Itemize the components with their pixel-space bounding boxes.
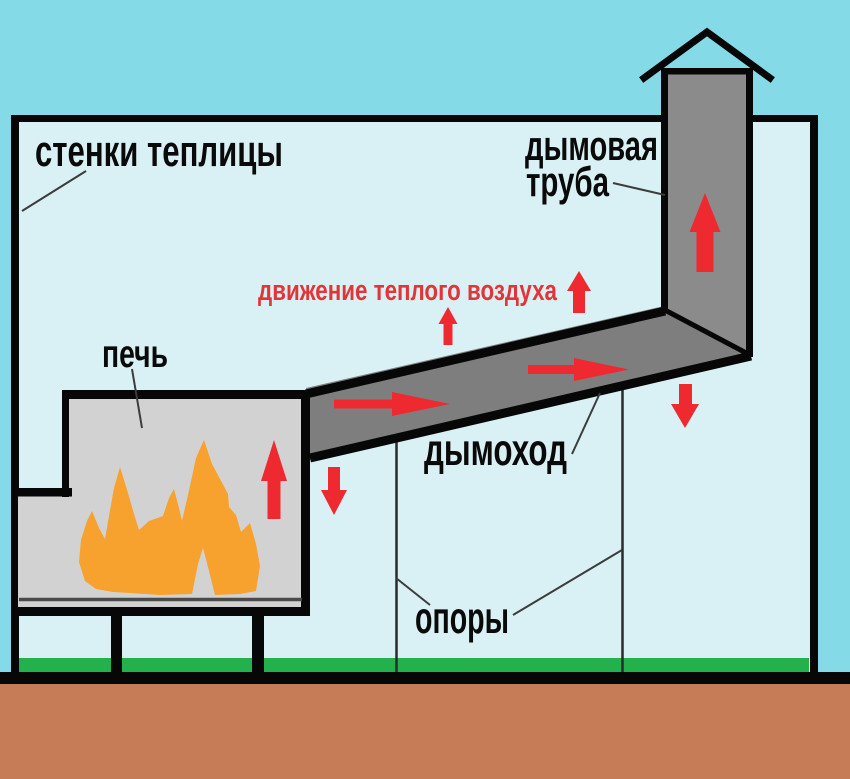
svg-text:дымоход: дымоход xyxy=(424,426,567,475)
svg-text:опоры: опоры xyxy=(415,594,509,643)
svg-text:движение теплого воздуха: движение теплого воздуха xyxy=(258,274,557,307)
svg-text:стенки теплицы: стенки теплицы xyxy=(35,128,283,176)
svg-text:печь: печь xyxy=(102,332,168,376)
svg-text:труба: труба xyxy=(526,160,610,206)
